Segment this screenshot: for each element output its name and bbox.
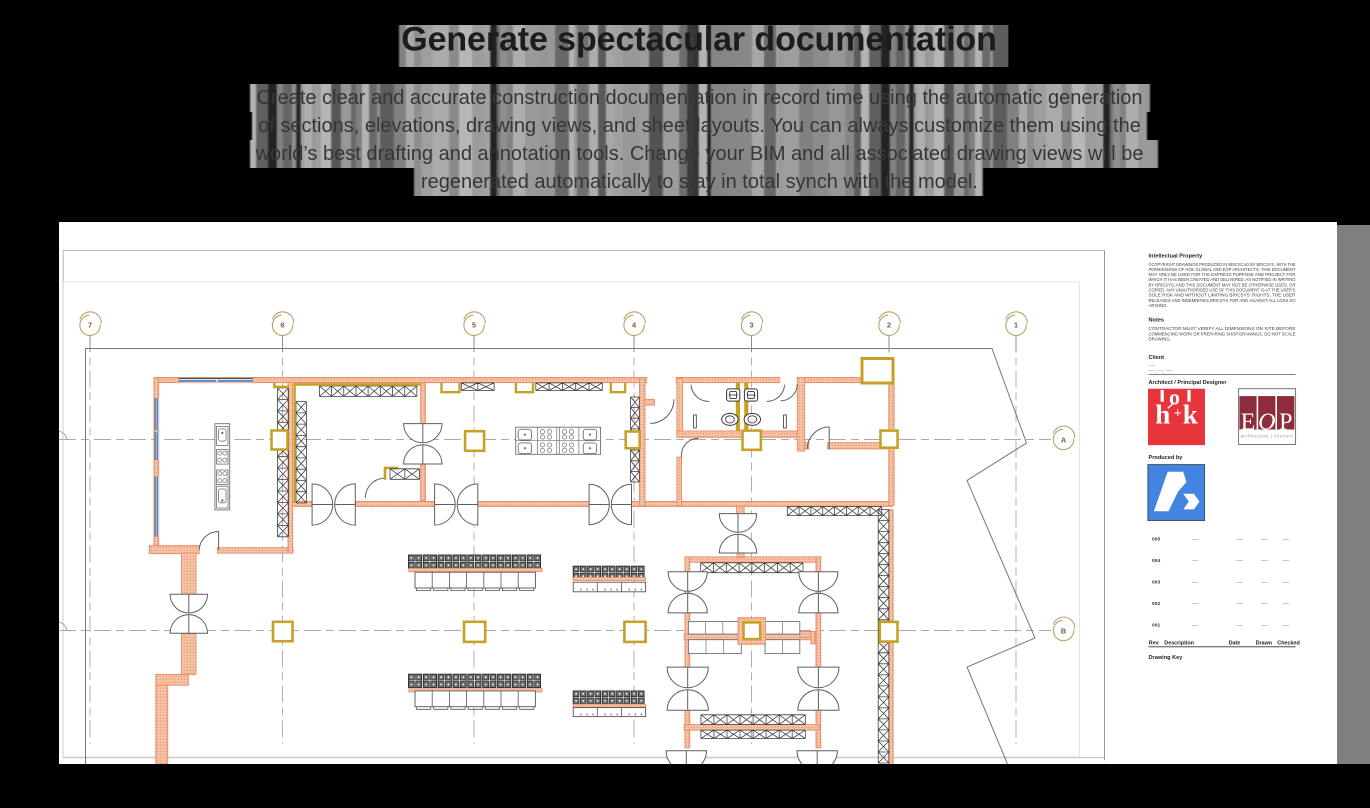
svg-text:----: ---- [1262,624,1269,629]
svg-text:Create clear and accurate cons: Create clear and accurate construction d… [256,87,1142,109]
svg-text:----: ---- [1192,538,1199,543]
svg-text:----: ---- [1283,624,1290,629]
svg-text:----: ---- [1192,559,1199,564]
svg-text:k: k [1183,399,1198,429]
svg-text:----: ---- [1283,559,1290,564]
svg-text:001: 001 [1152,623,1160,629]
svg-text:3: 3 [749,321,753,330]
svg-text:+: + [1174,407,1182,422]
svg-text:7: 7 [88,321,92,330]
svg-text:Drawn: Drawn [1256,641,1272,647]
svg-text:ARISING.: ARISING. [1149,303,1168,308]
svg-text:Notes: Notes [1149,317,1165,323]
svg-text:Produced by: Produced by [1149,455,1184,461]
svg-text:6: 6 [280,321,284,330]
svg-text:B: B [1061,626,1067,635]
svg-text:----: ---- [1283,602,1290,607]
svg-text:Client: Client [1149,355,1165,361]
svg-text:regenerated automatically to s: regenerated automatically to stay in tot… [421,171,978,193]
svg-text:003: 003 [1152,580,1160,586]
svg-text:----: ---- [1283,581,1290,586]
svg-text:----: ---- [1236,602,1243,607]
svg-text:----: ---- [1262,559,1269,564]
svg-text:Drawing Key: Drawing Key [1149,655,1184,661]
svg-text:Checked: Checked [1277,641,1299,647]
svg-text:----, ----, ----: ----, ----, ---- [1149,368,1173,373]
svg-text:004: 004 [1152,558,1160,564]
svg-text:----: ---- [1236,559,1243,564]
svg-text:----: ---- [1236,538,1243,543]
svg-text:world’s best drafting and anno: world’s best drafting and annotation too… [255,143,1144,165]
svg-text:----: ---- [1192,581,1199,586]
svg-text:Description: Description [1164,641,1194,647]
svg-text:Generate spectacular documenta: Generate spectacular documentation [401,21,997,59]
svg-text:----: ---- [1236,624,1243,629]
svg-text:O: O [1258,410,1275,436]
svg-text:Architect / Principal Designer: Architect / Principal Designer [1149,380,1228,386]
svg-text:----: ---- [1283,538,1290,543]
svg-text:Intellectual Property: Intellectual Property [1149,253,1204,259]
svg-text:E: E [1241,410,1256,436]
svg-text:h: h [1155,399,1170,429]
svg-text:2: 2 [887,321,891,330]
svg-text:----: ---- [1192,624,1199,629]
svg-text:----: ---- [1192,602,1199,607]
svg-text:----: ---- [1262,538,1269,543]
svg-text:DRAWING.: DRAWING. [1149,337,1171,342]
svg-text:architecture | interiors: architecture | interiors [1241,434,1294,439]
svg-text:Date: Date [1229,641,1241,647]
svg-text:Rev: Rev [1149,641,1159,647]
svg-text:005: 005 [1152,537,1160,543]
svg-text:P: P [1279,410,1292,436]
svg-text:A: A [1061,435,1067,444]
svg-text:RELEASES AND INDEMNIFIES BRICS: RELEASES AND INDEMNIFIES BRICSYS FOR AND… [1149,298,1297,303]
svg-text:----: ---- [1262,602,1269,607]
svg-text:of sections, elevations, drawi: of sections, elevations, drawing views, … [258,115,1141,137]
svg-text:002: 002 [1152,601,1160,607]
svg-text:----: ---- [1236,581,1243,586]
svg-text:----: ---- [1262,581,1269,586]
